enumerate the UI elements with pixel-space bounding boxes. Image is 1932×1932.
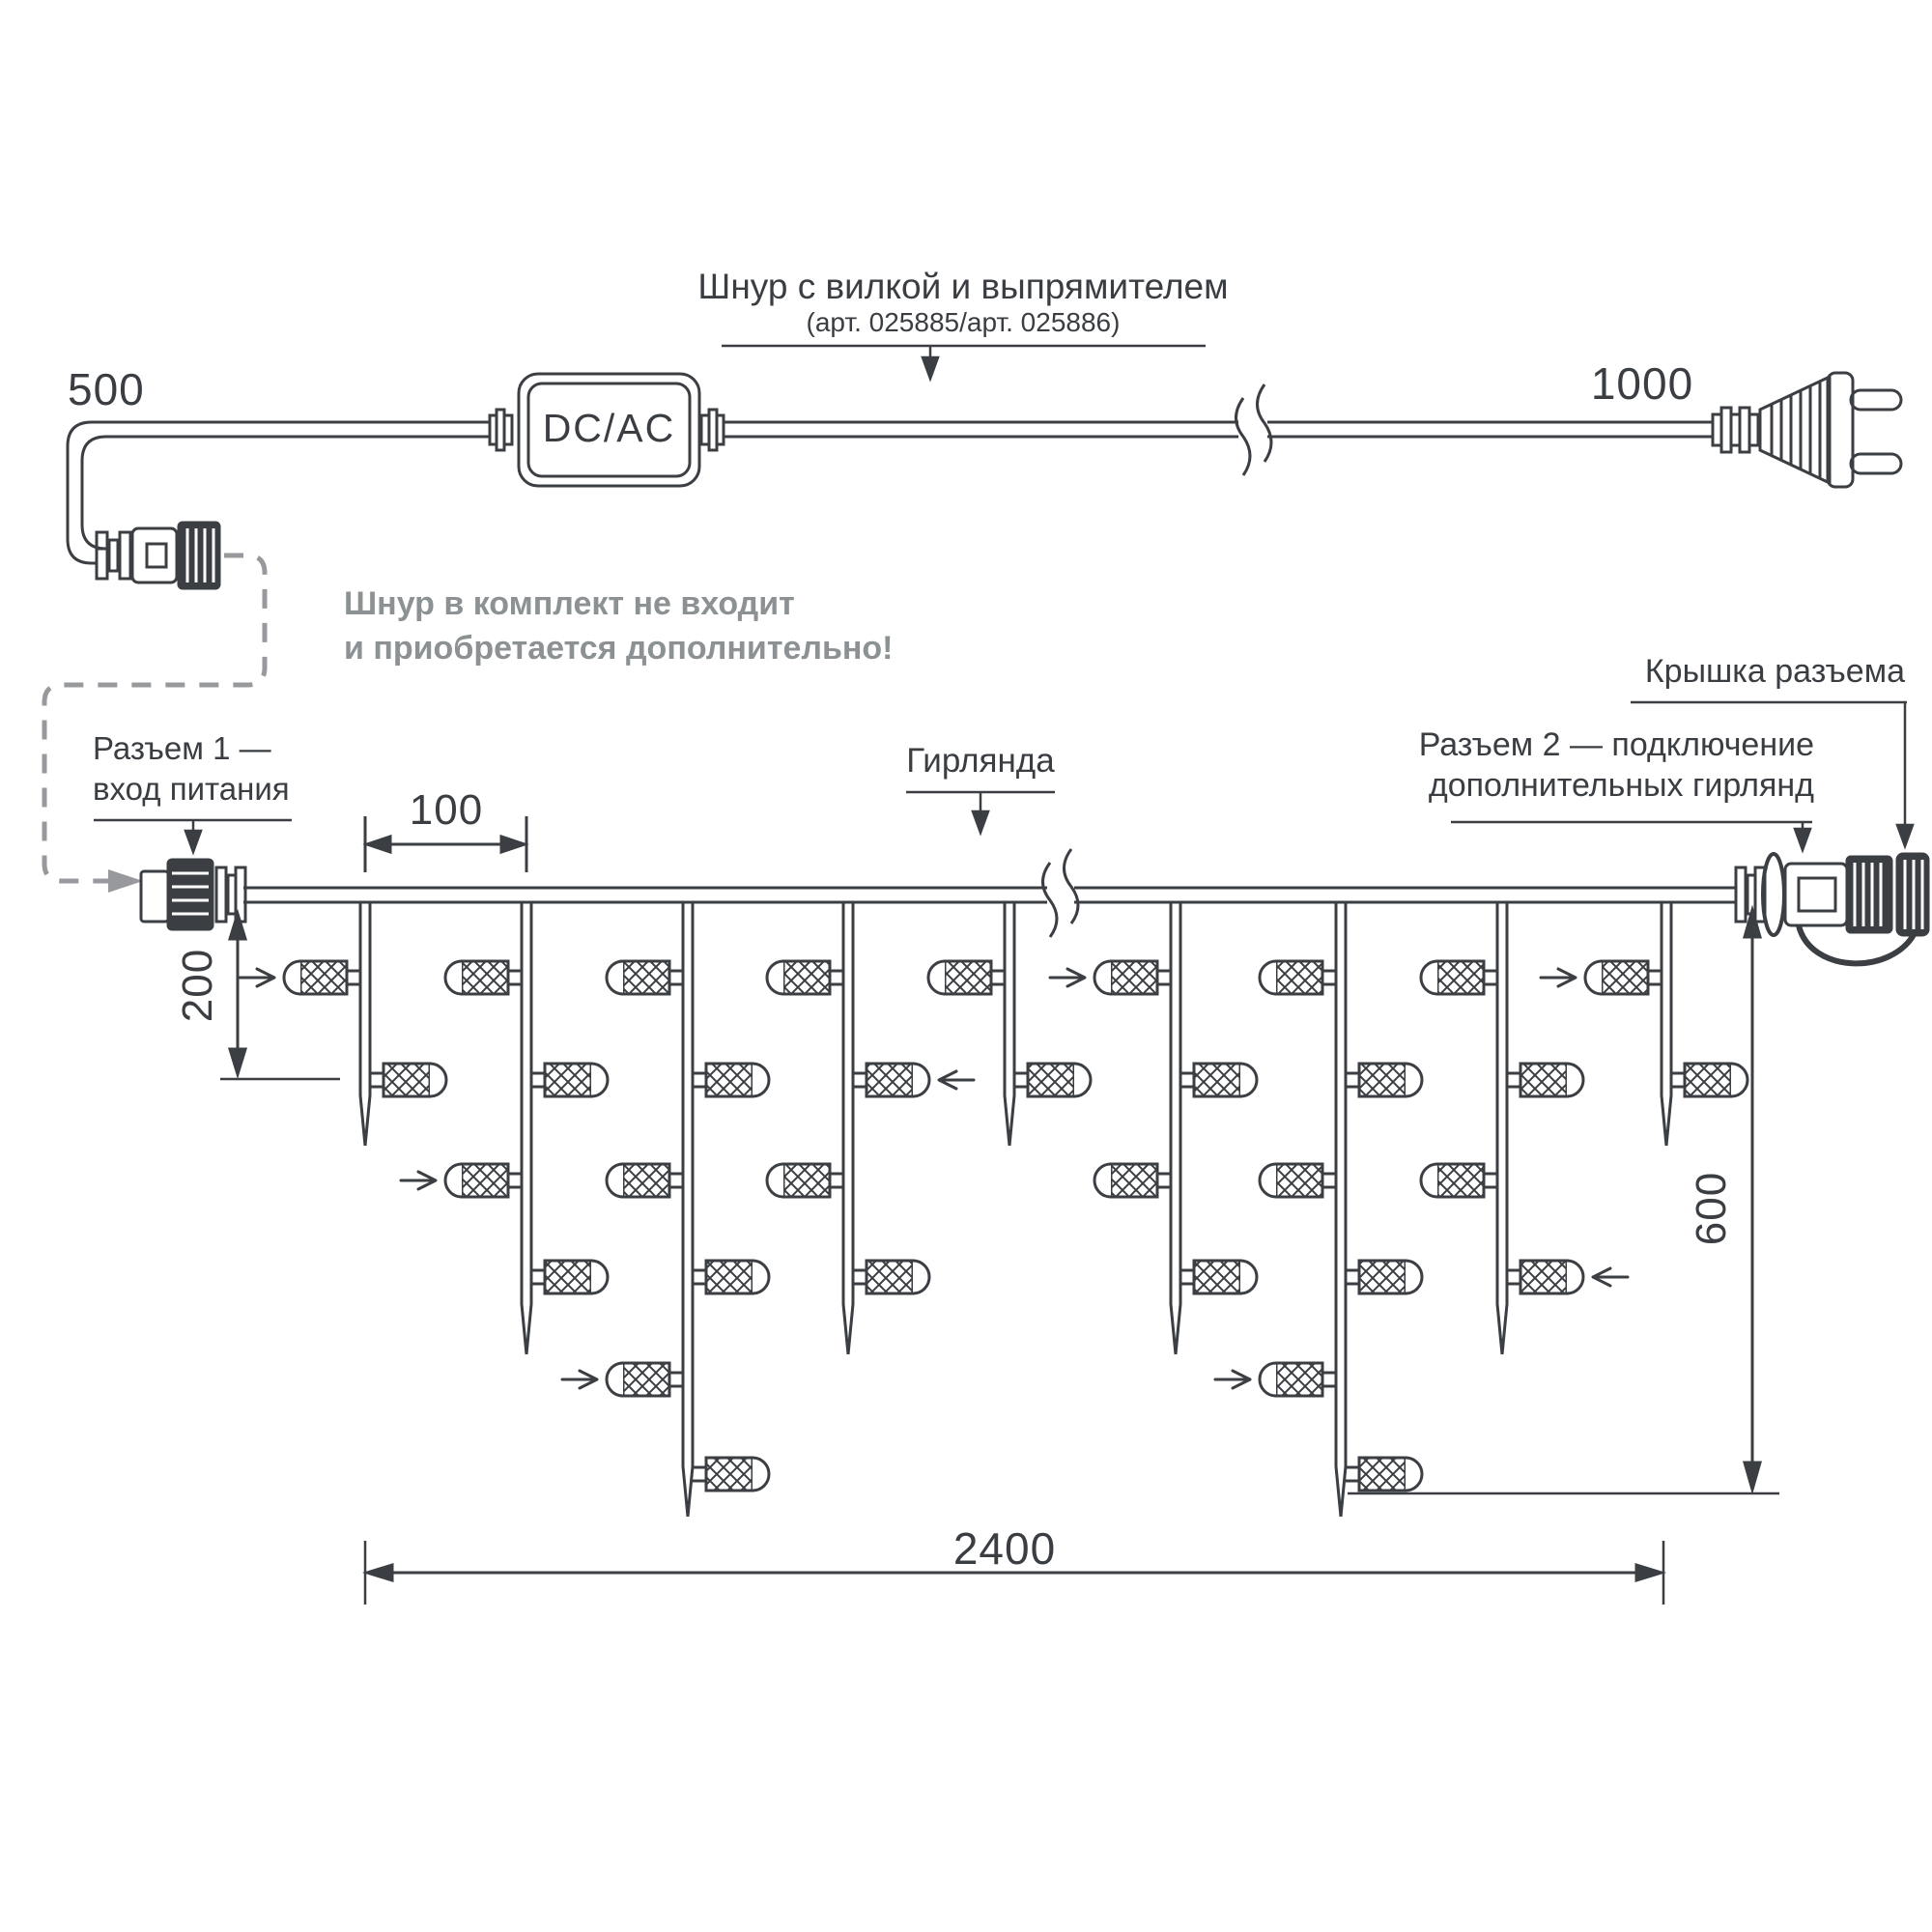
led-body [1194, 1064, 1240, 1096]
garland-drop [401, 902, 608, 1354]
led-bulb [693, 1064, 769, 1096]
led-dome [284, 961, 300, 994]
led-body [1602, 961, 1648, 994]
leader-garland [906, 792, 1055, 833]
led-body [1359, 1458, 1406, 1491]
dashed-line [44, 555, 265, 881]
led-stub [830, 971, 843, 984]
led-bulb [370, 1064, 446, 1096]
led-dome [430, 1064, 446, 1096]
garland-wire [243, 849, 1736, 937]
led-dome [1074, 1064, 1091, 1096]
drop-wire [1497, 902, 1507, 1354]
led-bulb [531, 1261, 608, 1293]
led-stub [1157, 1174, 1171, 1187]
led-body [783, 1164, 830, 1197]
led-dome [1585, 961, 1602, 994]
led-bulb [445, 961, 522, 994]
led-stub [1322, 1373, 1336, 1386]
led-body [1359, 1261, 1406, 1293]
led-dome [1406, 1064, 1422, 1096]
led-direction-arrow-icon [562, 1371, 597, 1388]
garland-drops [240, 902, 1747, 1517]
drop-wire [1336, 902, 1346, 1517]
led-bulb [1180, 1064, 1257, 1096]
led-dome [753, 1064, 769, 1096]
led-stub [1157, 971, 1171, 984]
led-bulb [445, 1164, 522, 1197]
leader-connector2 [1451, 822, 1812, 850]
drop-wire [683, 902, 693, 1517]
led-stub [1671, 1073, 1685, 1087]
dcac-coupler-left [490, 410, 512, 450]
led-dome [1567, 1064, 1583, 1096]
dashed-arrowhead-icon [108, 869, 143, 893]
led-stub [853, 1270, 867, 1284]
drop-wire [522, 902, 531, 1354]
drop-wire [1171, 902, 1180, 1354]
led-dome [767, 961, 783, 994]
led-stub [1346, 1467, 1359, 1481]
led-body [1359, 1064, 1406, 1096]
led-stub [1346, 1270, 1359, 1284]
led-dome [1260, 1164, 1276, 1197]
led-body [867, 1261, 913, 1293]
led-dome [1094, 1164, 1111, 1197]
led-bulb [607, 1363, 683, 1396]
not-included-note-line1: Шнур в комплект не входит [344, 585, 795, 623]
led-stub [669, 971, 683, 984]
drop-wire [1662, 902, 1671, 1146]
led-stub [531, 1270, 545, 1284]
led-bulb [1421, 961, 1497, 994]
led-bulb [1421, 1164, 1497, 1197]
drop-wire [1005, 902, 1014, 1146]
led-stub [1484, 1174, 1497, 1187]
led-stub [370, 1073, 384, 1087]
led-body [1111, 961, 1157, 994]
led-body [706, 1064, 753, 1096]
led-stub [991, 971, 1005, 984]
led-bulb [531, 1064, 608, 1096]
connector-2 [1736, 854, 1928, 963]
led-dome [1406, 1458, 1422, 1491]
dim-label-500: 500 [68, 363, 145, 415]
cord-right-b [1267, 422, 1713, 437]
connector1-label-line1: Разъем 1 — [93, 730, 271, 767]
led-stub [669, 1174, 683, 1187]
led-dome [1094, 961, 1111, 994]
dim-label-200: 200 [174, 918, 222, 1053]
led-stub [853, 1073, 867, 1087]
led-stub [693, 1467, 706, 1481]
garland-drop [240, 902, 446, 1146]
led-body [1276, 961, 1322, 994]
garland-label: Гирлянда [836, 742, 1125, 781]
led-bulb [1346, 1064, 1422, 1096]
garland-drop [1050, 902, 1257, 1354]
wire-break-s1 [1043, 863, 1058, 937]
led-bulb [1260, 961, 1336, 994]
cap-label: Крышка разъема [1519, 653, 1905, 691]
led-body [783, 961, 830, 994]
led-bulb [1260, 1164, 1336, 1197]
dim-label-1000: 1000 [1565, 357, 1719, 410]
led-stub [1180, 1073, 1194, 1087]
led-direction-arrow-icon [1593, 1268, 1628, 1286]
cord-left-inner [82, 437, 489, 549]
led-body [1520, 1261, 1567, 1293]
led-body [462, 961, 508, 994]
led-stub [693, 1270, 706, 1284]
led-dome [913, 1261, 929, 1293]
led-dome [753, 1261, 769, 1293]
led-bulb [1014, 1064, 1091, 1096]
led-dome [1240, 1064, 1257, 1096]
led-dome [1260, 1363, 1276, 1396]
led-stub [1014, 1073, 1028, 1087]
led-bulb [1346, 1458, 1422, 1491]
led-bulb [1094, 961, 1171, 994]
led-stub [669, 1373, 683, 1386]
connector1-label-line2: вход питания [93, 771, 290, 808]
led-bulb [767, 961, 843, 994]
led-dome [1567, 1261, 1583, 1293]
cord-articles: (арт. 025885/арт. 025886) [673, 307, 1253, 338]
cord-title: Шнур с вилкой и выпрямителем [673, 267, 1253, 307]
drop-wire [843, 902, 853, 1354]
led-dome [1406, 1261, 1422, 1293]
led-body [706, 1458, 753, 1491]
led-body [1520, 1064, 1567, 1096]
diagram-page: Шнур с вилкой и выпрямителем (арт. 02588… [0, 0, 1932, 1932]
dim-label-2400: 2400 [908, 1522, 1101, 1575]
led-body [1276, 1164, 1322, 1197]
led-body [545, 1261, 591, 1293]
led-body [1111, 1164, 1157, 1197]
led-bulb [693, 1458, 769, 1491]
led-body [706, 1261, 753, 1293]
led-direction-arrow-icon [939, 1071, 974, 1089]
led-stub [347, 971, 360, 984]
led-dome [591, 1261, 608, 1293]
led-bulb [1260, 1363, 1336, 1396]
led-stub [508, 971, 522, 984]
led-bulb [284, 961, 360, 994]
led-bulb [1671, 1064, 1747, 1096]
dim-200 [220, 914, 340, 1079]
led-stub [830, 1174, 843, 1187]
led-body [867, 1064, 913, 1096]
led-direction-arrow-icon [240, 969, 274, 986]
led-body [945, 961, 991, 994]
led-body [1276, 1363, 1322, 1396]
dcac-label: DC/AC [519, 406, 699, 451]
led-bulb [1507, 1064, 1583, 1096]
led-stub [531, 1073, 545, 1087]
led-dome [753, 1458, 769, 1491]
led-body [623, 1164, 669, 1197]
led-bulb [1180, 1261, 1257, 1293]
led-body [300, 961, 347, 994]
leader-top-cord [722, 346, 1206, 379]
led-direction-arrow-icon [1215, 1371, 1250, 1388]
led-stub [1507, 1073, 1520, 1087]
led-direction-arrow-icon [1541, 969, 1576, 986]
led-bulb [767, 1164, 843, 1197]
led-dome [607, 961, 623, 994]
led-dome [607, 1164, 623, 1197]
led-body [1437, 1164, 1484, 1197]
led-bulb [1094, 1164, 1171, 1197]
garland-drop [562, 902, 769, 1517]
led-stub [1507, 1270, 1520, 1284]
led-body [623, 1363, 669, 1396]
led-dome [1421, 1164, 1437, 1197]
led-body [1685, 1064, 1731, 1096]
dcac-coupler-right [701, 410, 724, 450]
garland-drop [1215, 902, 1422, 1517]
led-body [1194, 1261, 1240, 1293]
led-body [545, 1064, 591, 1096]
garland-drop [1541, 902, 1747, 1146]
led-dome [767, 1164, 783, 1197]
led-bulb [607, 1164, 683, 1197]
led-bulb [853, 1064, 929, 1096]
led-body [623, 961, 669, 994]
led-stub [508, 1174, 522, 1187]
wire-left [243, 888, 1047, 902]
garland-drop [928, 902, 1091, 1146]
led-body [1437, 961, 1484, 994]
drop-wire [360, 902, 370, 1146]
led-stub [693, 1073, 706, 1087]
led-bulb [1585, 961, 1662, 994]
led-body [384, 1064, 430, 1096]
mains-plug [1713, 373, 1901, 487]
not-included-dashed-path [44, 555, 265, 893]
led-bulb [853, 1261, 929, 1293]
led-stub [1484, 971, 1497, 984]
led-bulb [1346, 1261, 1422, 1293]
led-dome [928, 961, 945, 994]
led-dome [1421, 961, 1437, 994]
led-bulb [1507, 1261, 1583, 1293]
led-stub [1322, 971, 1336, 984]
dim-label-600: 600 [1688, 1141, 1736, 1276]
led-stub [1322, 1174, 1336, 1187]
led-bulb [693, 1261, 769, 1293]
dimensions [220, 816, 1779, 1605]
led-dome [1240, 1261, 1257, 1293]
led-direction-arrow-icon [401, 1172, 436, 1189]
led-body [462, 1164, 508, 1197]
connector2-label-line2: дополнительных гирлянд [1401, 767, 1814, 805]
connector-cap [1897, 854, 1928, 935]
dc-connector [97, 523, 219, 588]
led-dome [913, 1064, 929, 1096]
led-bulb [928, 961, 1005, 994]
led-stub [1346, 1073, 1359, 1087]
led-dome [445, 961, 462, 994]
led-stub [1648, 971, 1662, 984]
led-bulb [607, 961, 683, 994]
led-dome [591, 1064, 608, 1096]
connector2-label-line1: Разъем 2 — подключение [1401, 726, 1814, 764]
dim-label-100: 100 [398, 786, 495, 835]
led-direction-arrow-icon [1050, 969, 1085, 986]
wire-right [1074, 888, 1736, 902]
led-dome [1260, 961, 1276, 994]
leader-connector1 [94, 820, 292, 852]
not-included-note-line2: и приобретается дополнительно! [344, 630, 894, 668]
led-dome [607, 1363, 623, 1396]
led-dome [1731, 1064, 1747, 1096]
led-body [1028, 1064, 1074, 1096]
led-dome [445, 1164, 462, 1197]
cord-right-a [724, 422, 1238, 437]
led-stub [1180, 1270, 1194, 1284]
